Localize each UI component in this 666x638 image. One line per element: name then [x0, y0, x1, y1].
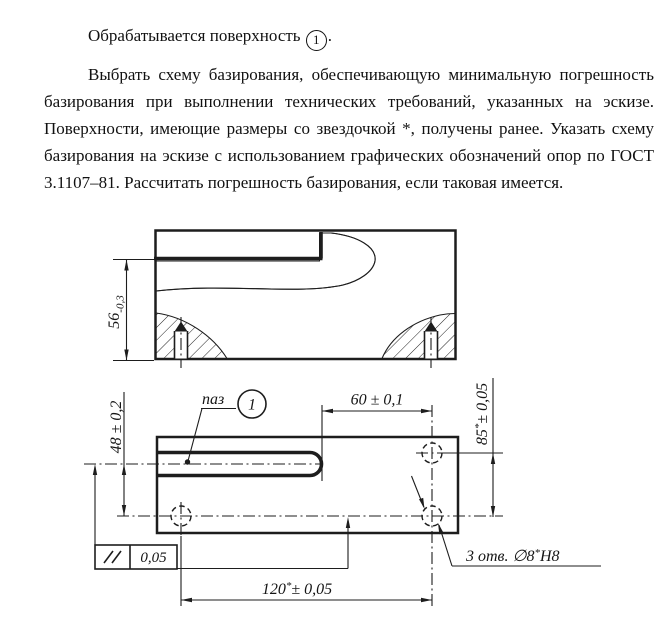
- surface-point: [185, 459, 190, 464]
- dim-48: 48 ± 0,2: [108, 392, 126, 516]
- sketch-drawing: 56-0,3: [0, 0, 666, 638]
- section-hatch-left-hole: [156, 313, 227, 359]
- section-hatch-under-slot: [156, 233, 375, 291]
- dim-85: 85*± 0,05: [473, 378, 495, 517]
- slot-label-text: паз: [202, 391, 224, 408]
- break-line-top: [156, 233, 375, 291]
- front-view: 56-0,3: [106, 231, 456, 369]
- balloon-number: 1: [248, 397, 256, 414]
- holes-note-text: 3 отв. ∅8*H8: [465, 547, 560, 565]
- task-page: Обрабатывается поверхность 1. Выбрать сх…: [0, 0, 666, 638]
- parallelism-icon: [104, 551, 121, 563]
- dim-56-text: 56-0,3: [106, 295, 127, 329]
- dim-48-text: 48 ± 0,2: [108, 401, 125, 454]
- dim-56: 56-0,3: [106, 260, 154, 361]
- dim-60-text: 60 ± 0,1: [351, 392, 404, 409]
- section-hatch-right-hole: [382, 314, 455, 359]
- holes-note: 3 отв. ∅8*H8: [412, 476, 602, 566]
- dim-85-text: 85*± 0,05: [473, 383, 491, 445]
- dim-120: 120*± 0,05: [181, 580, 432, 602]
- dim-120-text: 120*± 0,05: [262, 580, 332, 598]
- parallelism-value: 0,05: [140, 550, 167, 566]
- plan-view: 60 ± 0,1 85*± 0,05 48 ± 0,2 1: [84, 378, 601, 606]
